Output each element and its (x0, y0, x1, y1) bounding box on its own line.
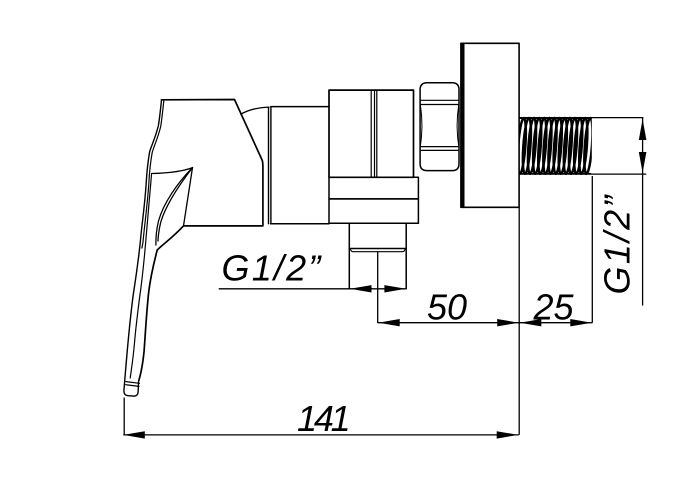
svg-text:25: 25 (533, 286, 575, 327)
svg-text:50: 50 (427, 287, 467, 328)
svg-text:141: 141 (297, 398, 348, 439)
svg-text:G1/2”: G1/2” (222, 247, 323, 288)
svg-text:G1/2”: G1/2” (597, 193, 638, 294)
